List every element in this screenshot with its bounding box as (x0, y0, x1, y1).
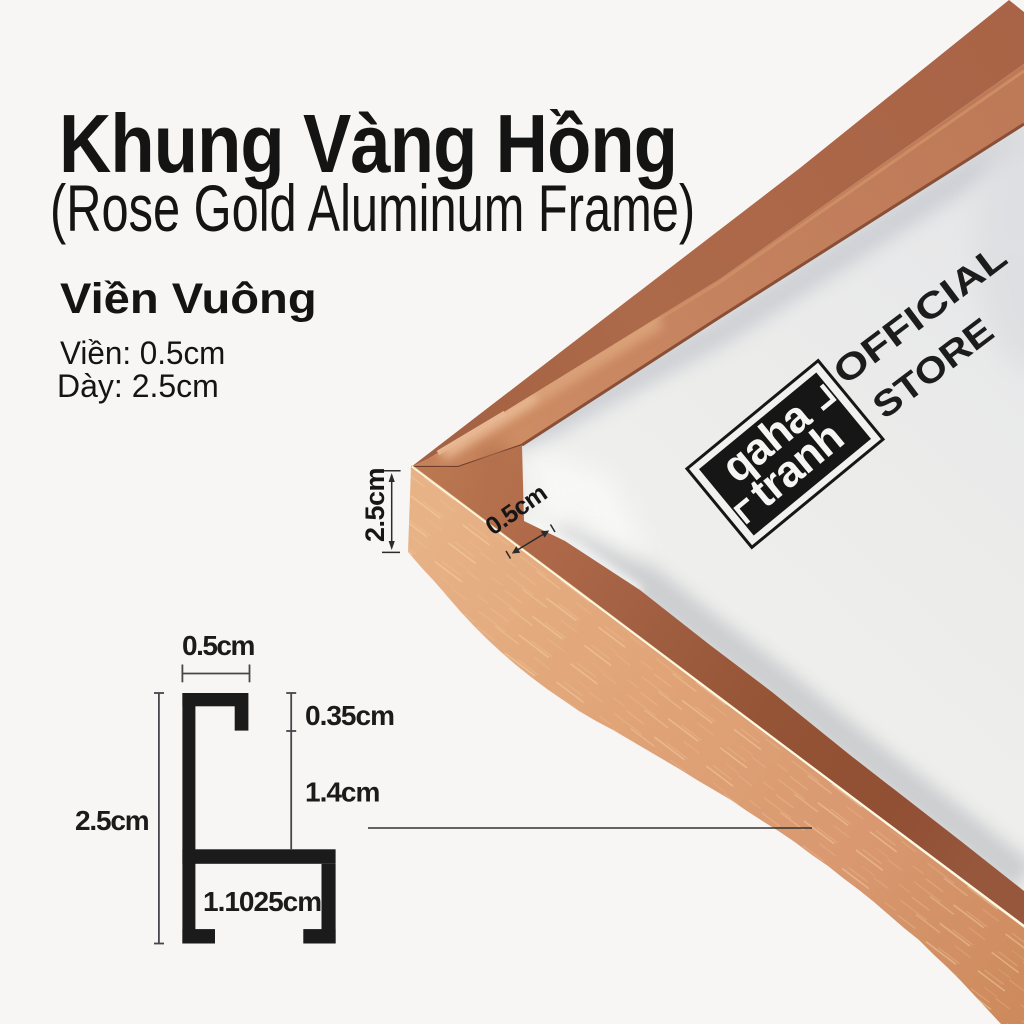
svg-text:0.35cm: 0.35cm (305, 700, 394, 731)
svg-text:2.5cm: 2.5cm (75, 805, 149, 836)
svg-text:1.1025cm: 1.1025cm (203, 886, 321, 917)
svg-text:1.4cm: 1.4cm (305, 777, 379, 808)
svg-text:0.5cm: 0.5cm (182, 630, 254, 661)
